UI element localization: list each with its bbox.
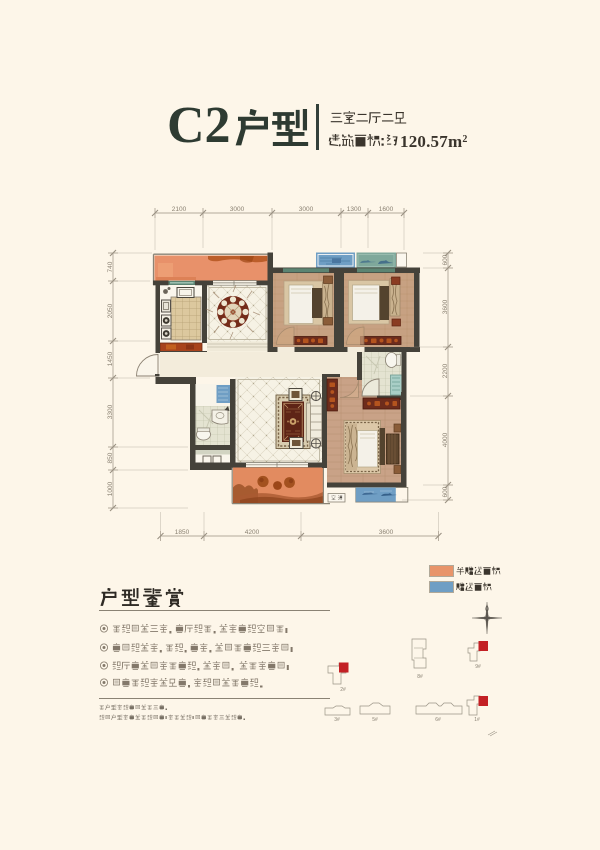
svg-text:1600: 1600	[379, 206, 394, 213]
svg-text:5#: 5#	[372, 717, 378, 723]
svg-text:600: 600	[442, 254, 449, 265]
svg-text:1#: 1#	[474, 717, 480, 723]
svg-text:3600: 3600	[379, 529, 394, 536]
svg-text:1000: 1000	[107, 481, 114, 496]
svg-text:600: 600	[442, 486, 449, 497]
svg-text:4200: 4200	[245, 529, 260, 536]
svg-text:850: 850	[107, 452, 114, 463]
svg-text:6#: 6#	[435, 717, 441, 723]
svg-text:3600: 3600	[442, 299, 449, 314]
svg-text:9#: 9#	[475, 664, 481, 670]
svg-text:4000: 4000	[442, 432, 449, 447]
svg-text:740: 740	[107, 261, 114, 272]
svg-text:1300: 1300	[347, 206, 362, 213]
svg-text:1450: 1450	[107, 351, 114, 366]
svg-text:3000: 3000	[230, 206, 245, 213]
svg-text:3#: 3#	[334, 717, 340, 723]
svg-text:2050: 2050	[107, 303, 114, 318]
svg-text:2#: 2#	[340, 687, 346, 693]
svg-text:8#: 8#	[417, 674, 423, 680]
svg-text:1850: 1850	[175, 529, 190, 536]
svg-text:2100: 2100	[172, 206, 187, 213]
svg-text:3000: 3000	[299, 206, 314, 213]
svg-text:2200: 2200	[442, 363, 449, 378]
svg-text:3300: 3300	[107, 404, 114, 419]
